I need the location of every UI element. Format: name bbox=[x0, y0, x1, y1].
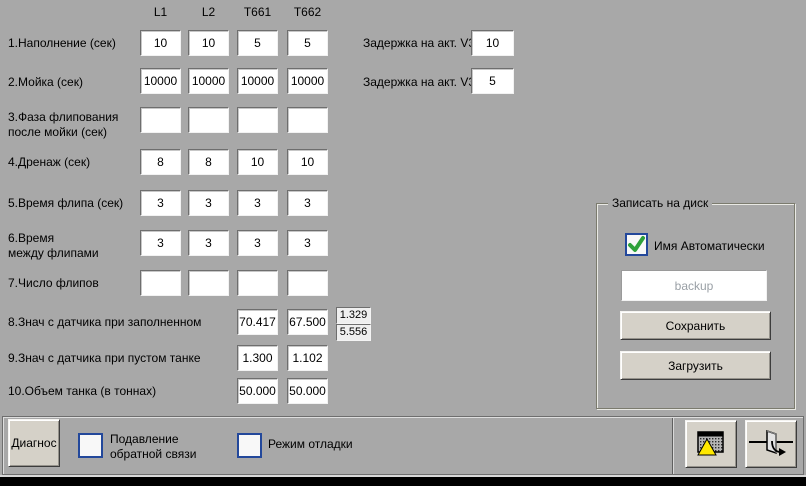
row-label-drain: 4.Дренаж (сек) bbox=[8, 155, 90, 170]
wash-l2-input[interactable] bbox=[188, 68, 229, 94]
exit-button[interactable] bbox=[745, 420, 797, 468]
tank-volume-t661-input[interactable] bbox=[237, 378, 278, 404]
delay-v36-input[interactable] bbox=[471, 30, 514, 56]
flip-count-l1-input[interactable] bbox=[140, 270, 181, 296]
flip-phase-l1-input[interactable] bbox=[140, 107, 181, 133]
sensor-full-t662-input[interactable] bbox=[287, 309, 328, 335]
wash-t661-input[interactable] bbox=[237, 68, 278, 94]
backup-filename-input[interactable] bbox=[621, 270, 767, 301]
fill-l2-input[interactable] bbox=[188, 30, 229, 56]
between-flips-t662-input[interactable] bbox=[287, 230, 328, 256]
auto-name-checkbox[interactable] bbox=[625, 233, 648, 256]
column-header-l1: L1 bbox=[140, 5, 181, 19]
between-flips-t661-input[interactable] bbox=[237, 230, 278, 256]
bottom-panel-divider-highlight bbox=[673, 418, 674, 474]
column-header-t661: T661 bbox=[237, 5, 278, 19]
wash-t662-input[interactable] bbox=[287, 68, 328, 94]
drain-l1-input[interactable] bbox=[140, 149, 181, 175]
column-header-l2: L2 bbox=[188, 5, 229, 19]
delay-v31-input[interactable] bbox=[471, 68, 514, 94]
tank-volume-t662-input[interactable] bbox=[287, 378, 328, 404]
save-to-disk-title: Записать на диск bbox=[608, 196, 712, 210]
sensor-full-t661-input[interactable] bbox=[237, 309, 278, 335]
drain-t661-input[interactable] bbox=[237, 149, 278, 175]
flip-phase-l2-input[interactable] bbox=[188, 107, 229, 133]
alarm-screen-button[interactable] bbox=[685, 420, 737, 468]
diagnostics-button[interactable]: Диагнос bbox=[8, 419, 60, 467]
row-label-tank-volume: 10.Объем танка (в тоннах) bbox=[8, 384, 156, 399]
sensor-empty-t662-input[interactable] bbox=[287, 345, 328, 371]
window-bottom-edge bbox=[0, 477, 806, 486]
fill-l1-input[interactable] bbox=[140, 30, 181, 56]
row-label-flip-time: 5.Время флипа (сек) bbox=[8, 196, 123, 211]
auto-name-label: Имя Автоматически bbox=[654, 239, 765, 254]
debug-mode-checkbox[interactable] bbox=[237, 433, 262, 458]
check-icon bbox=[627, 235, 646, 254]
flip-time-l2-input[interactable] bbox=[188, 190, 229, 216]
row-label-fill: 1.Наполнение (сек) bbox=[8, 36, 116, 51]
column-header-t662: T662 bbox=[287, 5, 328, 19]
between-flips-l2-input[interactable] bbox=[188, 230, 229, 256]
sensor-full-readout-1: 1.329 bbox=[336, 307, 371, 324]
suppress-feedback-checkbox[interactable] bbox=[78, 433, 103, 458]
sensor-empty-t661-input[interactable] bbox=[237, 345, 278, 371]
row-label-flip-count: 7.Число флипов bbox=[8, 276, 99, 291]
fill-t661-input[interactable] bbox=[237, 30, 278, 56]
between-flips-l1-input[interactable] bbox=[140, 230, 181, 256]
row-label-sensor-empty: 9.Знач с датчика при пустом танке bbox=[8, 351, 201, 366]
flip-count-l2-input[interactable] bbox=[188, 270, 229, 296]
flip-phase-t662-input[interactable] bbox=[287, 107, 328, 133]
save-button[interactable]: Сохранить bbox=[620, 311, 771, 340]
suppress-feedback-label: Подавление обратной связи bbox=[110, 432, 196, 462]
control-panel-window: L1 L2 T661 T662 1.Наполнение (сек) 2.Мой… bbox=[0, 0, 806, 486]
row-label-between-flips: 6.Время между флипами bbox=[8, 231, 99, 261]
sensor-full-readout-2: 5.556 bbox=[336, 324, 371, 341]
row-label-flip-phase: 3.Фаза флипования после мойки (сек) bbox=[8, 110, 118, 140]
delay-v31-label: Задержка на акт. V31 bbox=[363, 75, 482, 90]
exit-door-icon bbox=[748, 428, 794, 460]
alarm-window-icon bbox=[696, 431, 726, 457]
row-label-sensor-full: 8.Знач с датчика при заполненном bbox=[8, 315, 201, 330]
delay-v36-label: Задержка на акт. V36 bbox=[363, 36, 482, 51]
flip-time-t661-input[interactable] bbox=[237, 190, 278, 216]
flip-count-t661-input[interactable] bbox=[237, 270, 278, 296]
flip-phase-t661-input[interactable] bbox=[237, 107, 278, 133]
flip-count-t662-input[interactable] bbox=[287, 270, 328, 296]
flip-time-l1-input[interactable] bbox=[140, 190, 181, 216]
drain-t662-input[interactable] bbox=[287, 149, 328, 175]
fill-t662-input[interactable] bbox=[287, 30, 328, 56]
flip-time-t662-input[interactable] bbox=[287, 190, 328, 216]
load-button[interactable]: Загрузить bbox=[620, 351, 771, 380]
row-label-wash: 2.Мойка (сек) bbox=[8, 75, 83, 90]
wash-l1-input[interactable] bbox=[140, 68, 181, 94]
drain-l2-input[interactable] bbox=[188, 149, 229, 175]
debug-mode-label: Режим отладки bbox=[268, 437, 353, 452]
